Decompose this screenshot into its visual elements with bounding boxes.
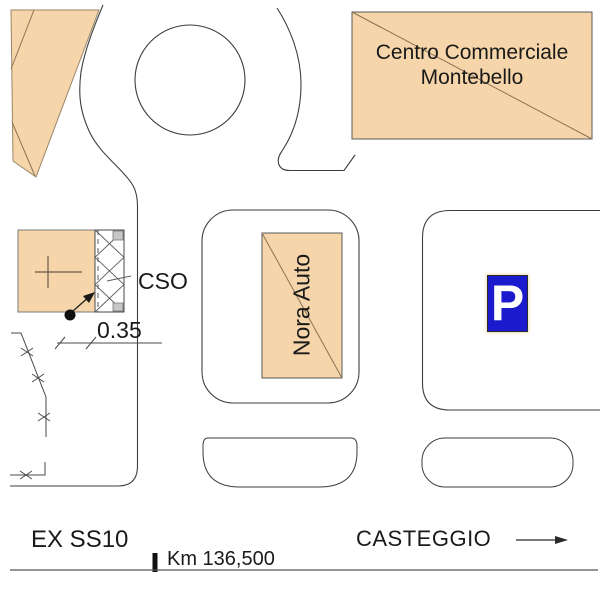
cso-building <box>18 230 131 312</box>
traffic-island-right <box>422 438 573 487</box>
hatch-corner-marker-bottom <box>113 303 123 311</box>
parking-sign: P <box>487 275 528 332</box>
roundabout-circle <box>135 25 245 135</box>
site-plan-canvas: Centro Commerciale Montebello Nora Auto … <box>0 0 600 600</box>
cso-hatch <box>95 230 131 312</box>
direction-arrow <box>516 536 568 544</box>
traffic-island-left <box>203 438 357 487</box>
cso-label: CSO <box>138 268 188 295</box>
km-tick-mark <box>153 553 158 572</box>
centro-label-line2: Montebello <box>352 65 592 90</box>
dimension-value-label: 0.35 <box>97 317 142 344</box>
hatch-corner-marker-top <box>113 231 123 240</box>
fence-line <box>10 333 50 479</box>
parking-sign-p: P <box>491 278 524 328</box>
road-name-label: EX SS10 <box>31 526 128 554</box>
road-right-edge <box>277 8 355 171</box>
km-marker-label: Km 136,500 <box>167 548 275 571</box>
top-left-parcel <box>11 10 99 177</box>
survey-point-dot <box>65 310 76 321</box>
centro-commerciale-label: Centro Commerciale Montebello <box>352 40 592 90</box>
direction-label: CASTEGGIO <box>356 526 491 552</box>
centro-label-line1: Centro Commerciale <box>352 40 592 65</box>
nora-auto-label: Nora Auto <box>289 254 316 356</box>
